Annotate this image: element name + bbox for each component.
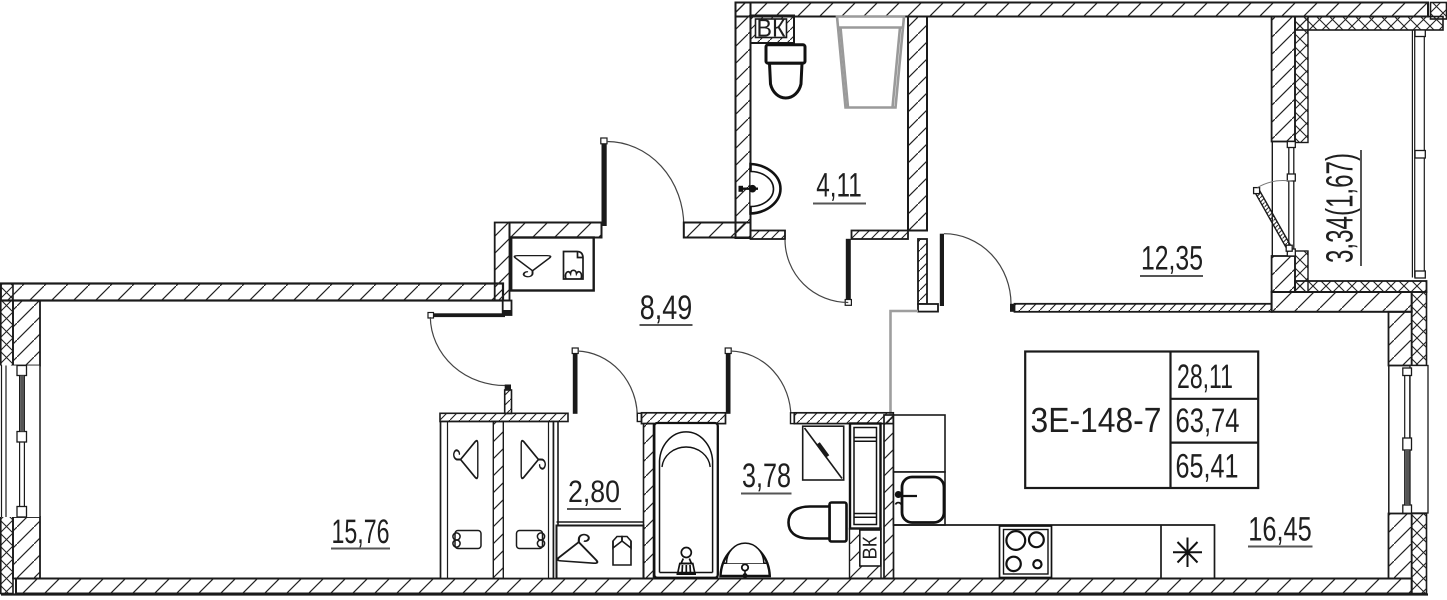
svg-text:15,76: 15,76 [332,513,390,551]
svg-text:4,11: 4,11 [816,167,862,205]
svg-text:63,74: 63,74 [1176,402,1240,440]
svg-text:ВК: ВК [757,15,786,43]
svg-text:3,78: 3,78 [742,457,791,495]
svg-text:ВК: ВК [860,536,882,559]
svg-text:3,34(1,67): 3,34(1,67) [1320,153,1362,263]
svg-text:28,11: 28,11 [1177,358,1233,396]
svg-text:65,41: 65,41 [1176,448,1239,486]
svg-text:16,45: 16,45 [1248,511,1312,549]
svg-text:8,49: 8,49 [640,289,693,327]
svg-text:3Е-148-7: 3Е-148-7 [1031,401,1162,440]
svg-text:2,80: 2,80 [568,474,620,509]
svg-text:12,35: 12,35 [1141,240,1203,278]
